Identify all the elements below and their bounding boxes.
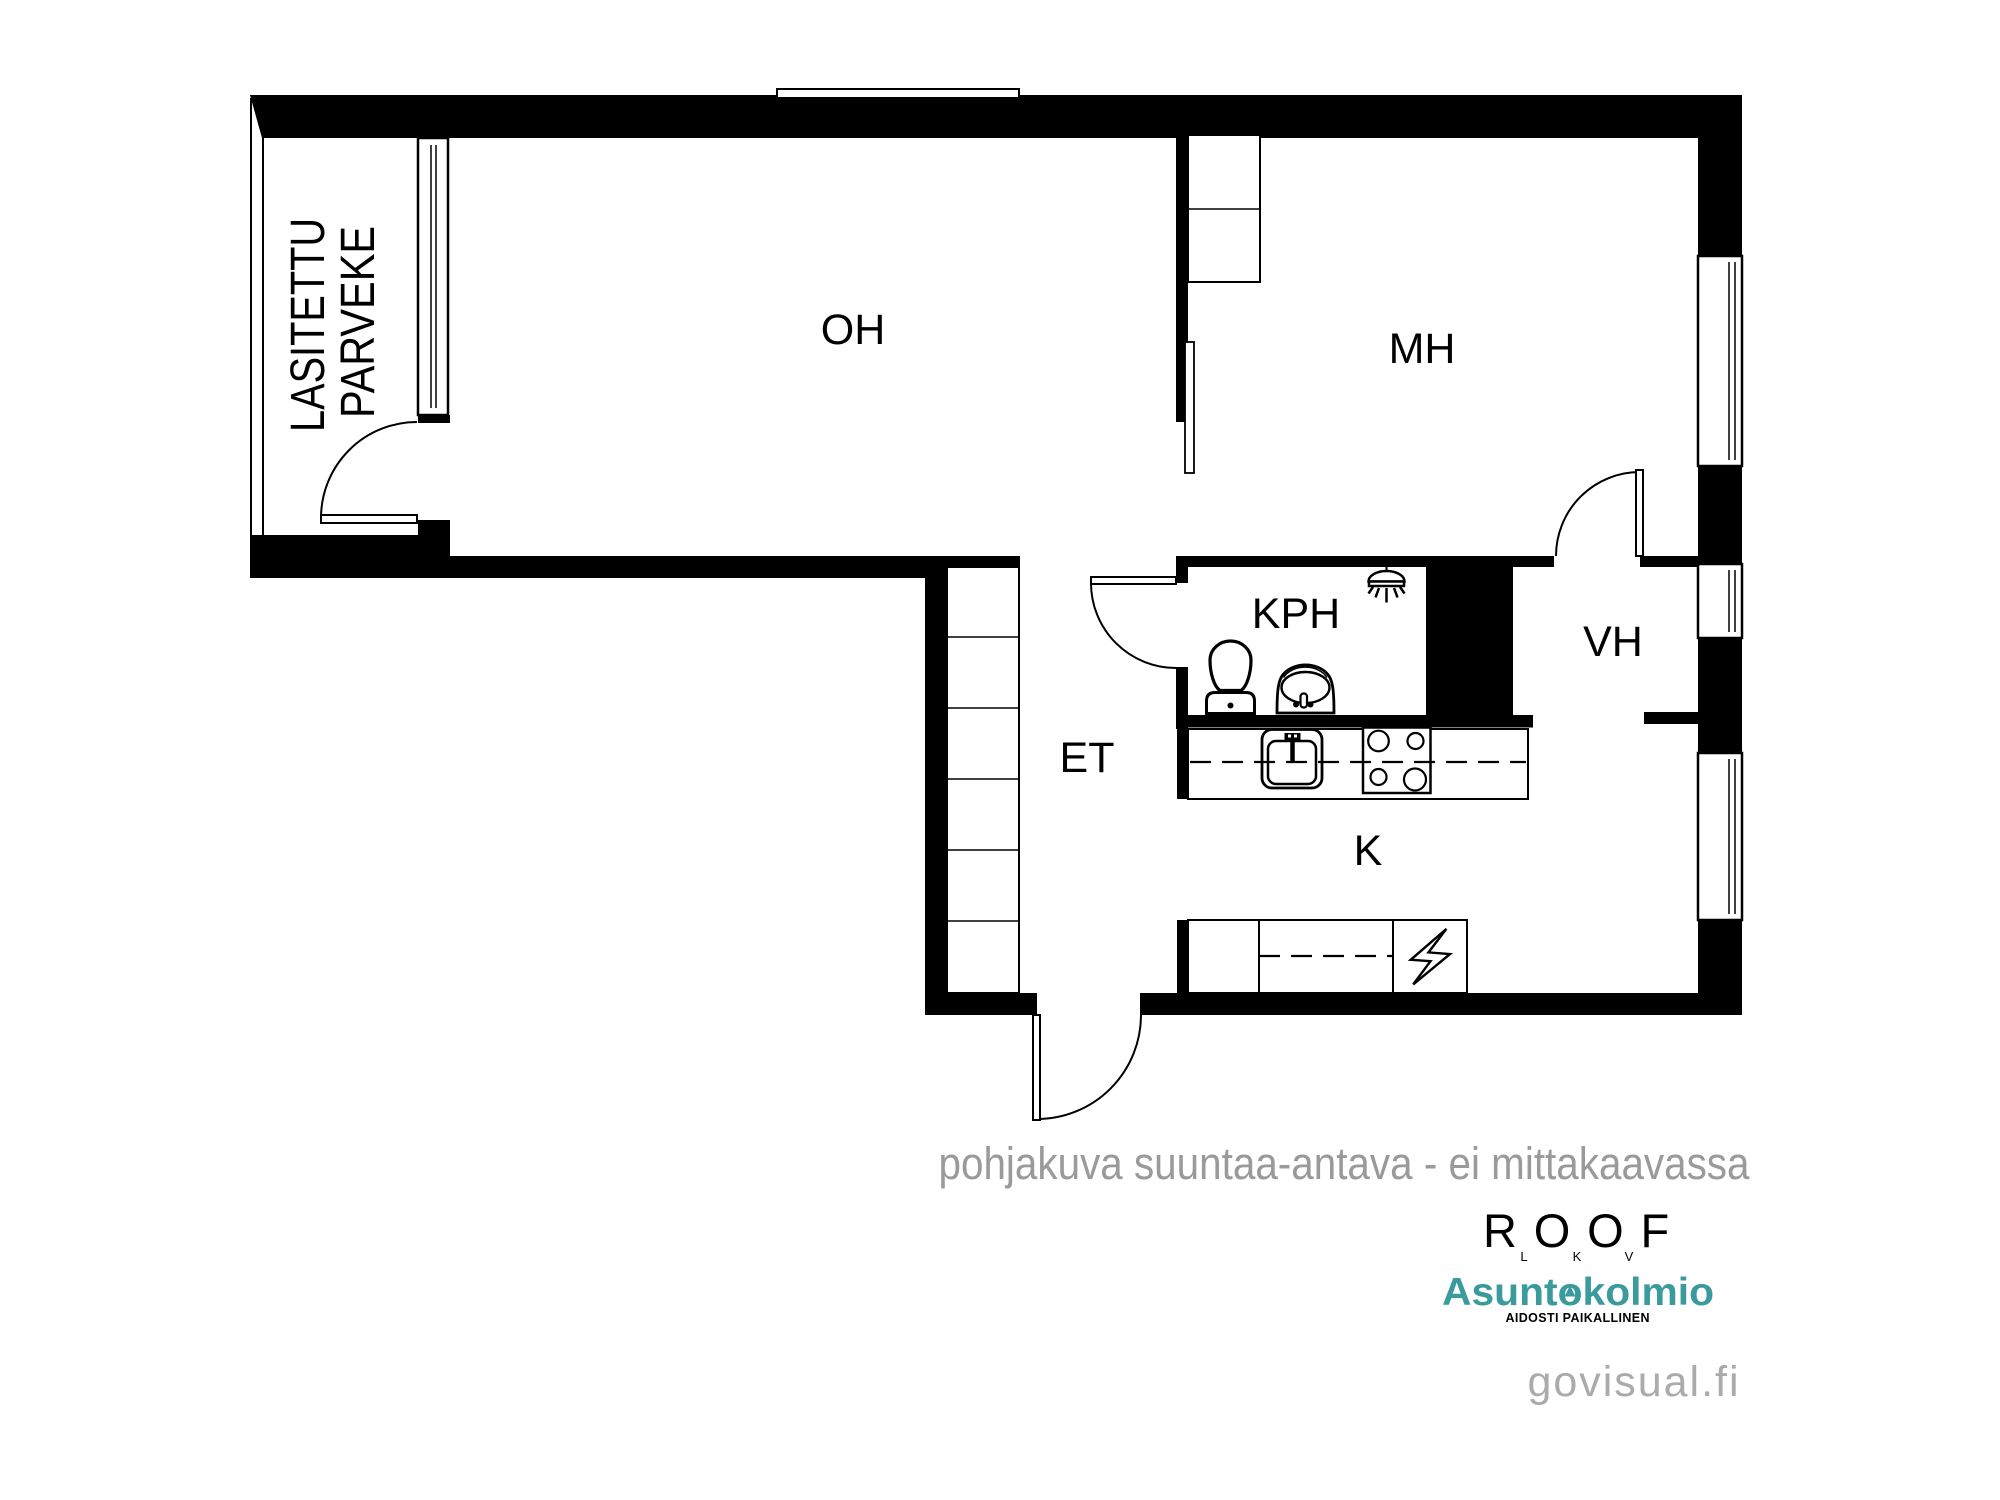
svg-text:V: V	[1625, 1249, 1634, 1264]
svg-text:Asuntokolmio: Asuntokolmio	[1442, 1271, 1714, 1314]
svg-text:LASITETTU: LASITETTU	[282, 218, 335, 432]
svg-text:ROOF: ROOF	[1483, 1204, 1686, 1257]
svg-text:K: K	[1354, 827, 1383, 875]
svg-text:L: L	[1520, 1249, 1527, 1264]
svg-text:ET: ET	[1060, 734, 1115, 782]
svg-text:pohjakuva suuntaa-antava - ei: pohjakuva suuntaa-antava - ei mittakaava…	[939, 1138, 1751, 1189]
svg-text:PARVEKE: PARVEKE	[332, 226, 385, 418]
svg-text:AIDOSTI PAIKALLINEN: AIDOSTI PAIKALLINEN	[1506, 1311, 1651, 1325]
svg-text:K: K	[1573, 1249, 1582, 1264]
svg-text:OH: OH	[821, 306, 886, 354]
svg-text:govisual.fi: govisual.fi	[1528, 1358, 1739, 1406]
svg-text:KPH: KPH	[1252, 590, 1340, 638]
svg-text:MH: MH	[1389, 325, 1456, 373]
svg-text:VH: VH	[1583, 618, 1643, 666]
